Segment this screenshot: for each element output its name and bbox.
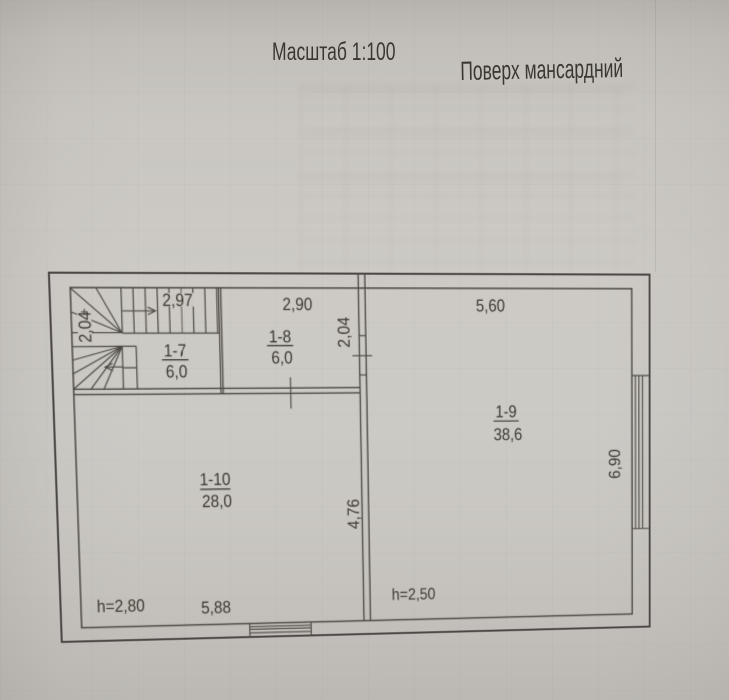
svg-text:5,88: 5,88 (201, 597, 231, 618)
svg-text:6,0: 6,0 (165, 361, 187, 382)
svg-text:h=2,80: h=2,80 (96, 595, 145, 616)
svg-text:1-9: 1-9 (495, 401, 517, 421)
svg-text:28,0: 28,0 (202, 491, 232, 512)
svg-text:h=2,50: h=2,50 (392, 585, 436, 604)
svg-text:5,60: 5,60 (476, 295, 505, 315)
svg-text:1-7: 1-7 (163, 340, 186, 361)
svg-text:2,04: 2,04 (333, 317, 353, 348)
svg-text:6,90: 6,90 (605, 449, 624, 479)
svg-text:6,0: 6,0 (271, 347, 293, 367)
svg-text:2,97: 2,97 (162, 289, 193, 310)
svg-text:1-8: 1-8 (269, 326, 292, 346)
svg-text:2,04: 2,04 (74, 311, 96, 343)
svg-text:4,76: 4,76 (343, 499, 363, 529)
svg-text:2,90: 2,90 (282, 294, 312, 314)
svg-text:1-10: 1-10 (199, 469, 230, 490)
svg-text:38,6: 38,6 (494, 424, 523, 444)
